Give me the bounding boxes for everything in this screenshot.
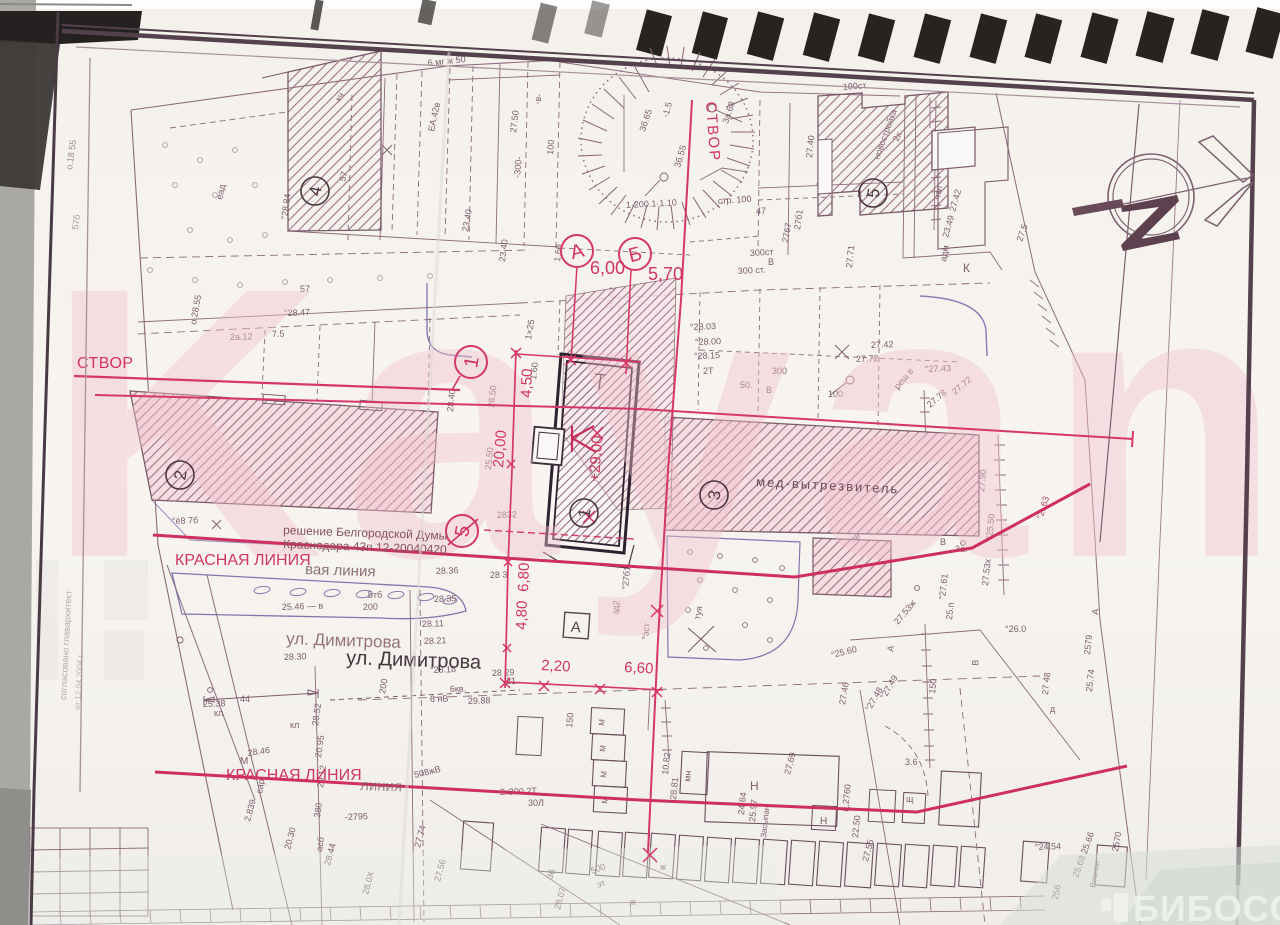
svg-text:КРАСНАЯ ЛИНИЯ: КРАСНАЯ ЛИНИЯ (175, 552, 311, 569)
svg-text:6,80: 6,80 (515, 562, 533, 592)
svg-text:М: М (598, 744, 608, 752)
svg-text:150: 150 (927, 678, 939, 694)
svg-text:вая линия: вая линия (305, 561, 376, 580)
svg-text:мн: мн (682, 770, 693, 782)
svg-text:щ: щ (906, 794, 914, 804)
svg-text:6кв.: 6кв. (450, 683, 467, 694)
svg-text:асб: асб (314, 836, 326, 852)
svg-text:44: 44 (240, 694, 250, 704)
svg-text:°24.54: °24.54 (1035, 841, 1061, 852)
svg-text:В: В (970, 659, 981, 666)
svg-text:-2795: -2795 (345, 811, 368, 822)
svg-text:КРАСНАЯ ЛИНИЯ: КРАСНАЯ ЛИНИЯ (226, 767, 362, 784)
svg-text:М: М (599, 770, 609, 778)
svg-text:20,00: 20,00 (490, 429, 510, 468)
svg-text:кл: кл (214, 708, 223, 718)
svg-text:5,70: 5,70 (648, 264, 683, 284)
svg-text:150: 150 (564, 712, 576, 728)
svg-text:30Л: 30Л (528, 798, 544, 808)
svg-text:6,60: 6,60 (624, 659, 654, 678)
svg-text:6,00: 6,00 (590, 258, 625, 278)
svg-text:А: А (570, 619, 581, 637)
svg-text:6 нВ: 6 нВ (430, 693, 449, 704)
svg-text:380: 380 (312, 802, 324, 818)
svg-text:М: М (240, 756, 248, 767)
svg-text:4,50: 4,50 (518, 368, 536, 398)
svg-text:100: 100 (545, 139, 556, 155)
svg-text:БИБОСС: БИБОСС (1133, 888, 1280, 925)
svg-text:д: д (1050, 704, 1056, 714)
svg-text:3.6: 3.6 (905, 757, 918, 767)
svg-text:М: М (597, 718, 607, 726)
svg-text:-300-: -300- (512, 156, 524, 178)
svg-text:-в-: -в- (532, 93, 544, 105)
svg-text:28.30: 28.30 (284, 651, 307, 662)
svg-text:4,80: 4,80 (513, 600, 531, 630)
svg-text:2,20: 2,20 (541, 657, 571, 676)
svg-text:кл: кл (290, 720, 299, 730)
svg-text:Н: Н (820, 816, 827, 827)
svg-text:линия: линия (360, 777, 402, 795)
svg-text:+29,00: +29,00 (586, 435, 606, 482)
svg-text:29.88: 29.88 (468, 695, 491, 706)
svg-text:Н: Н (750, 779, 759, 793)
